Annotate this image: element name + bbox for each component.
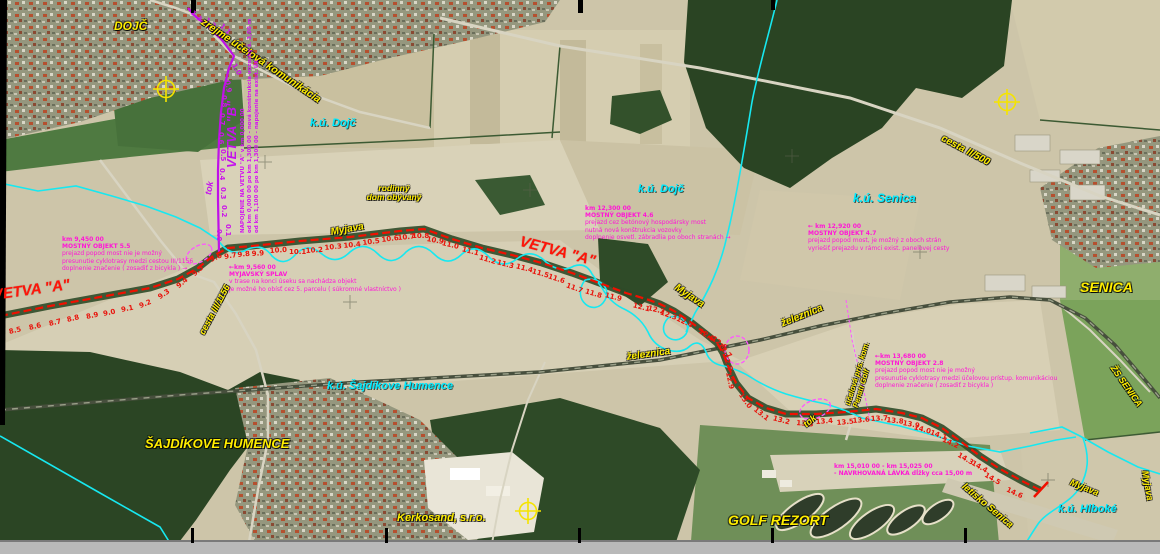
chainage-label-vetva-a: 12.4 <box>675 315 694 330</box>
chainage-label-vetva-a: 10.2 <box>305 246 323 255</box>
note-bridge-km-12300: km 12,300 00 MOSTNÝ OBJEKT 4.6 prejazd c… <box>585 205 731 241</box>
note-rodinny-dom-line2: dom obývaný <box>356 193 432 202</box>
note-line: ←km 13,680 00 <box>875 353 1057 360</box>
note-line: ← km 12,920 00 <box>808 223 949 230</box>
chainage-label-vetva-a: 13.0 <box>737 391 753 410</box>
note-line: - NAVRHOVANÁ LÁVKA dĺžky cca 15,00 m <box>834 470 972 477</box>
chainage-label-vetva-a: 11.7 <box>565 281 584 294</box>
note-bridge-km-9450: km 9,450 00 MOSTNÝ OBJEKT 5.5 prejazd po… <box>62 236 193 272</box>
chainage-label-vetva-a: 11.9 <box>604 291 623 303</box>
note-line: MOSTNÝ OBJEKT 4.6 <box>585 212 731 219</box>
chainage-label-vetva-a: 8.7 <box>48 317 62 328</box>
chainage-label-vetva-a: 10.1 <box>289 248 306 256</box>
note-line: v trase na konci úseku sa nachádza objek… <box>229 278 401 285</box>
note-line: doplnenie osvetl. zábradlia po oboch str… <box>585 234 731 241</box>
cadastre-label-hlboke: k.ú. Hlboké <box>1058 504 1117 516</box>
place-label-kerkosand: Kerkosand, s.r.o. <box>397 513 486 525</box>
chainage-label-vetva-a: 9.0 <box>102 308 116 318</box>
chainage-layer: 8.58.68.78.88.99.09.19.29.39.49.59.69.79… <box>0 0 1160 554</box>
note-bridge-km-12920: ← km 12,920 00 MOSTNÝ OBJEKT 4.7 prejazd… <box>808 223 949 252</box>
chainage-label-vetva-a: 11.1 <box>461 245 480 257</box>
chainage-label-vetva-a: 9.2 <box>138 298 152 310</box>
chainage-label-vetva-a: 14.5 <box>983 471 1002 487</box>
note-line: km 12,300 00 <box>585 205 731 212</box>
chainage-label-vetva-a: 12.8 <box>721 353 734 372</box>
place-label-sajdikove-humence: ŠAJDÍKOVE HUMENCE <box>145 437 289 451</box>
route-label-vetva-b: VETVA "B" <box>225 101 239 168</box>
note-line: prejazd popod most, je možný z oboch str… <box>808 237 949 244</box>
chainage-label-vetva-a: 10.3 <box>324 242 342 252</box>
chainage-label-vetva-a: 8.8 <box>66 313 80 324</box>
chainage-label-vetva-a: 8.9 <box>85 311 99 321</box>
cadastre-label-dojc-west: k.ú. Dojč <box>310 118 356 130</box>
chainage-label-vetva-a: 12.9 <box>724 371 735 390</box>
chainage-label-vetva-a: 13.1 <box>752 406 771 423</box>
cadastre-label-dojc-east: k.ú. Dojč <box>638 184 684 196</box>
chainage-label-vetva-a: 9.9 <box>251 249 264 258</box>
note-line: MOSTNÝ OBJEKT 5.5 <box>62 243 193 250</box>
chainage-label-vetva-a: 11.2 <box>478 253 497 266</box>
chainage-label-vetva-a: 11.3 <box>496 258 515 270</box>
chainage-label-vetva-a: 14.2 <box>941 436 960 451</box>
chainage-label-vetva-a: 9.4 <box>175 276 190 290</box>
chainage-label-vetva-a: 13.6 <box>852 416 870 425</box>
note-line: doplnenie značenie ( zosadiť z bicykla ) <box>875 382 1057 389</box>
place-label-golf-rezort: GOLF REZORT <box>728 513 828 528</box>
note-lavka-km-15010: km 15,010 00 - km 15,025 00 - NAVRHOVANÁ… <box>834 463 972 477</box>
note-line: MOSTNÝ OBJEKT 4.7 <box>808 230 949 237</box>
note-line: presunutie cyklotrasy medzi cestou III/1… <box>62 258 193 265</box>
note-rodinny-dom: rodinný dom obývaný <box>356 184 432 202</box>
place-label-dojc: DOJČ <box>114 20 147 33</box>
chainage-label-vetva-b: 0.0 <box>215 229 223 241</box>
cadastre-label-sajdikove-humence: k.ú. Šajdíkove Humence <box>327 381 453 393</box>
place-label-senica: SENICA <box>1080 280 1133 295</box>
note-line: NAPOJENIE NA VETVU "A" v km 0,000 00 <box>240 19 247 233</box>
chainage-label-vetva-a: 10.4 <box>343 240 361 250</box>
note-line: vyriešiť prejazdu v rámci exist. panelov… <box>808 245 949 252</box>
chainage-label-vetva-a: 9.3 <box>157 287 172 301</box>
chainage-label-vetva-b: 0.2 <box>220 205 228 217</box>
note-line: km 15,010 00 - km 15,025 00 <box>834 463 972 470</box>
note-line: km 9,450 00 <box>62 236 193 243</box>
chainage-label-vetva-a: 11.0 <box>441 239 460 251</box>
note-line: od km 1,100 00 po km 1,300 00 - napojeni… <box>254 19 261 233</box>
note-line: od km 0,000 00 po km 1,300 00 - nová kon… <box>247 19 254 233</box>
chainage-label-vetva-a: 9.7 <box>224 251 238 261</box>
note-line: presunutie cyklotrasy medzi účelovou prí… <box>875 375 1057 382</box>
chainage-label-vetva-a: 13.4 <box>815 417 833 426</box>
chainage-label-vetva-a: 11.6 <box>547 272 566 285</box>
note-bridge-km-13680: ←km 13,680 00 MOSTNÝ OBJEKT 2.8 prejazd … <box>875 353 1057 389</box>
chainage-label-vetva-a: 11.8 <box>584 287 603 300</box>
cadastre-label-senica: k.ú. Senica <box>853 192 916 205</box>
chainage-label-vetva-a: 9.1 <box>120 304 134 314</box>
chainage-label-vetva-b: 0.1 <box>224 224 232 236</box>
note-line: nutná nová konštrukcia vozovky <box>585 227 731 234</box>
chainage-label-vetva-b: 0.9 <box>223 80 233 94</box>
chainage-label-vetva-b: 0.3 <box>219 187 227 199</box>
chainage-label-vetva-a: 10.6 <box>381 234 399 244</box>
note-line: je možné ho obísť cez 5. parcelu ( súkro… <box>229 286 401 293</box>
chainage-label-vetva-a: 9.8 <box>237 250 250 259</box>
note-line: prejazd popod most nie je možný <box>62 250 193 257</box>
note-line: doplnenie značenie ( zosadiť z bicykla )… <box>62 265 193 272</box>
chainage-label-vetva-a: 13.2 <box>772 414 791 426</box>
note-line: MOSTNÝ OBJEKT 2.8 <box>875 360 1057 367</box>
note-line: prejazd cez betónový hospodársky most <box>585 219 731 226</box>
note-vetva-b-details: NAPOJENIE NA VETVU "A" v km 0,000 00 od … <box>240 19 261 233</box>
note-line: MYJAVSKÝ SPLAV <box>229 271 401 278</box>
chainage-label-vetva-b: 0.4 <box>218 168 226 180</box>
chainage-label-vetva-a: 8.5 <box>8 325 22 336</box>
note-line: ←km 9,560 00 <box>229 264 401 271</box>
chainage-label-vetva-a: 14.6 <box>1005 486 1024 501</box>
chainage-label-vetva-a: 10.5 <box>362 237 380 247</box>
chainage-label-vetva-a: 8.6 <box>28 321 42 332</box>
note-line: prejazd popod most nie je možný <box>875 367 1057 374</box>
map-sheet: 8.58.68.78.88.99.09.19.29.39.49.59.69.79… <box>0 0 1160 554</box>
chainage-label-vetva-a: 9.6 <box>209 252 224 264</box>
chainage-label-vetva-a: 10.0 <box>269 246 287 255</box>
note-splav-km-9560: ←km 9,560 00 MYJAVSKÝ SPLAV v trase na k… <box>229 264 401 293</box>
